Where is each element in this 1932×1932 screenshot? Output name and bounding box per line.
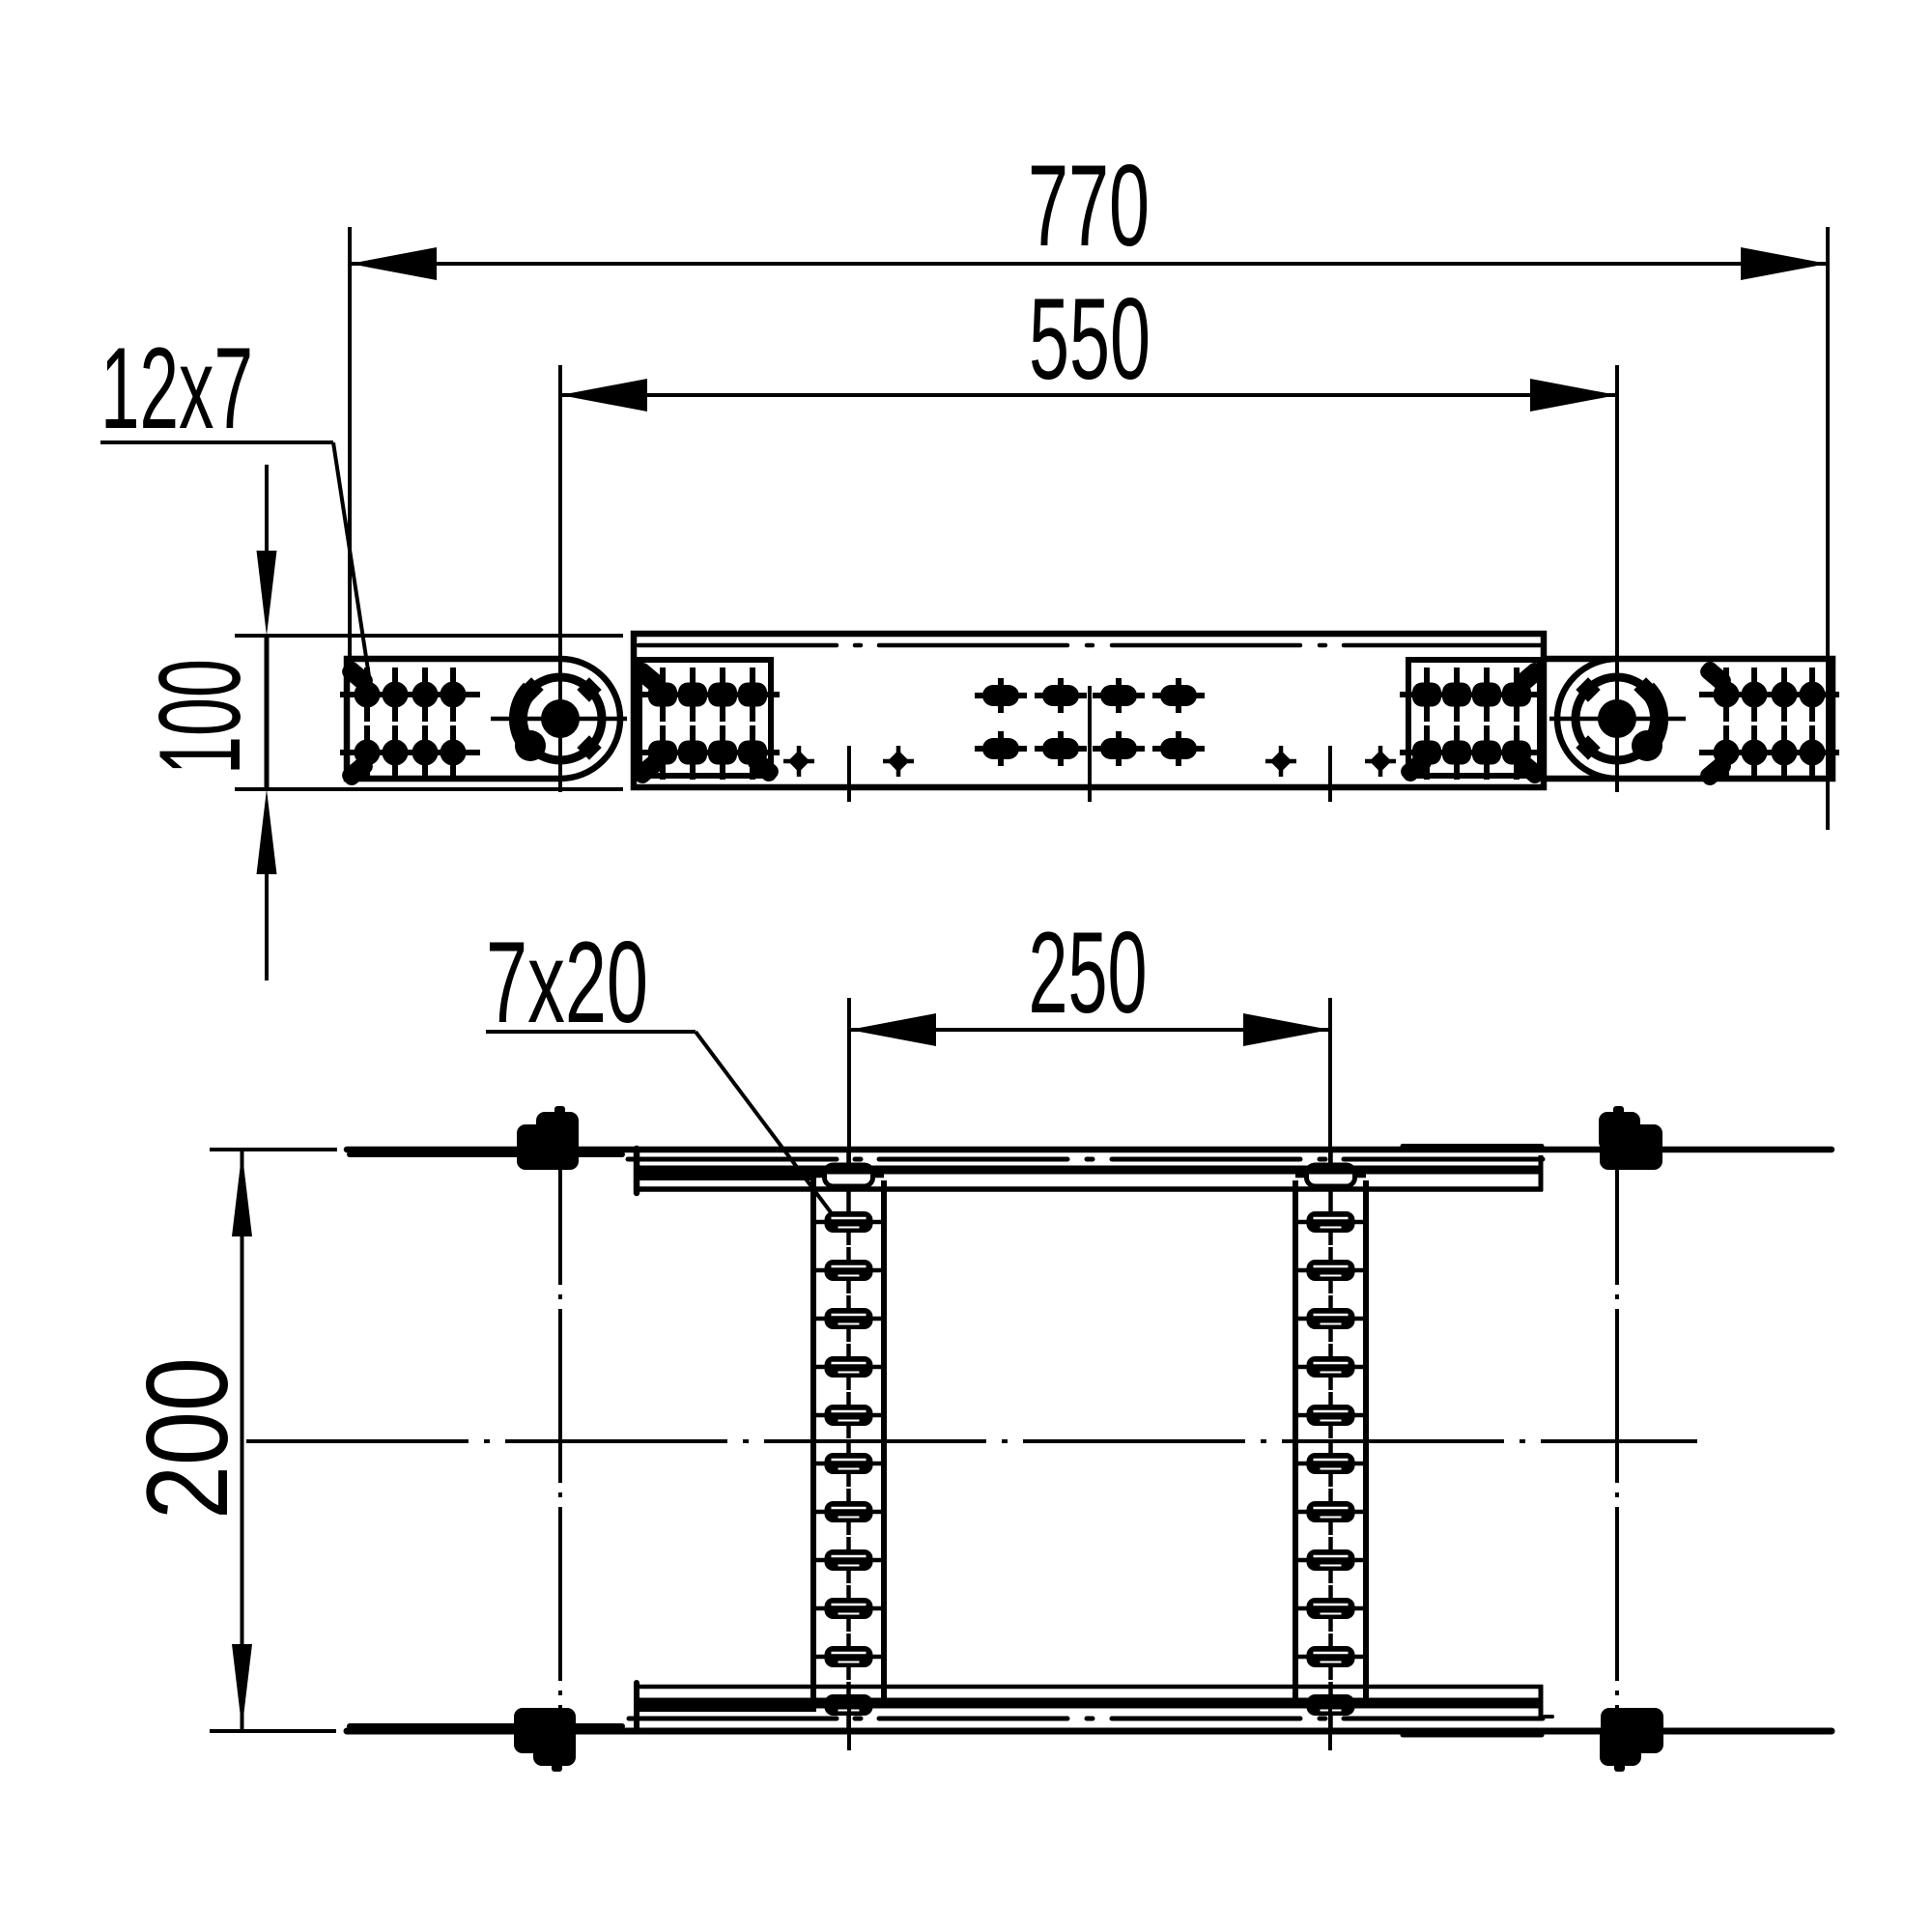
svg-text:550: 550 (1029, 274, 1151, 404)
svg-text:100: 100 (135, 659, 265, 775)
svg-text:7x20: 7x20 (486, 918, 648, 1047)
svg-text:200: 200 (123, 1357, 252, 1520)
svg-text:12x7: 12x7 (100, 324, 253, 453)
svg-text:770: 770 (1028, 141, 1150, 270)
svg-text:250: 250 (1029, 908, 1148, 1037)
